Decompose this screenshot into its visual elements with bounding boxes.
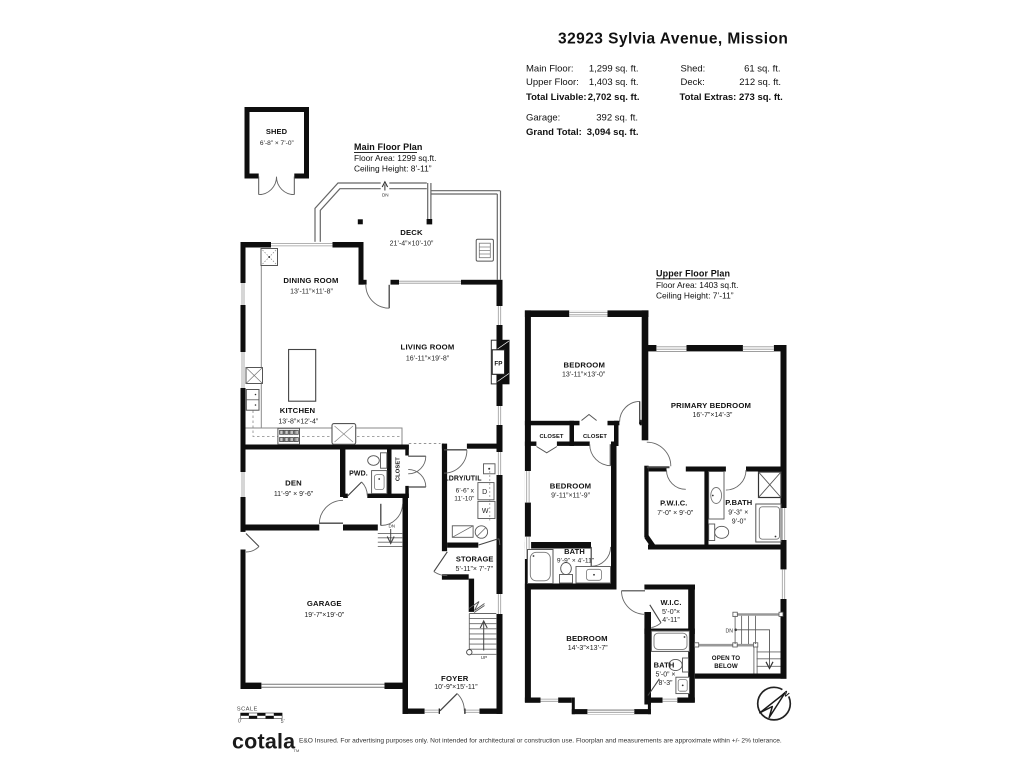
svg-text:Floor Area: 1299 sq.ft.: Floor Area: 1299 sq.ft. (354, 153, 436, 163)
svg-text:5’-0” ×: 5’-0” × (655, 672, 675, 679)
svg-text:Deck:: Deck: (681, 77, 705, 88)
svg-text:cotala: cotala (232, 730, 296, 754)
svg-text:5’: 5’ (281, 719, 285, 725)
svg-text:Floor Area: 1403 sq.ft.: Floor Area: 1403 sq.ft. (656, 280, 738, 290)
svg-text:Shed:: Shed: (681, 64, 706, 75)
svg-text:13’-8”×12’-4”: 13’-8”×12’-4” (278, 419, 319, 426)
svg-text:14’-3”×13’-7”: 14’-3”×13’-7” (568, 645, 609, 652)
svg-text:61 sq. ft.: 61 sq. ft. (744, 64, 780, 75)
svg-text:11’-9” × 9’-6”: 11’-9” × 9’-6” (274, 491, 314, 498)
svg-text:LDRY/UTIL: LDRY/UTIL (444, 476, 482, 483)
svg-text:DEN: DEN (285, 479, 302, 488)
svg-text:DN: DN (388, 524, 395, 529)
svg-text:UP: UP (481, 655, 487, 660)
svg-text:Total Extras: 273 sq. ft.: Total Extras: 273 sq. ft. (680, 92, 783, 103)
svg-text:OPEN TO: OPEN TO (712, 655, 741, 662)
svg-text:Main Floor Plan: Main Floor Plan (354, 142, 423, 152)
svg-text:P.BATH: P.BATH (725, 498, 752, 507)
svg-text:392 sq. ft.: 392 sq. ft. (596, 113, 638, 124)
svg-text:BELOW: BELOW (714, 663, 738, 670)
svg-text:6’-8” × 7’-0”: 6’-8” × 7’-0” (260, 140, 294, 147)
svg-text:W: W (482, 508, 489, 515)
svg-text:6’-6” x: 6’-6” x (456, 488, 475, 495)
svg-text:D: D (482, 489, 487, 496)
svg-text:W.I.C.: W.I.C. (660, 598, 681, 607)
svg-text:PRIMARY BEDROOM: PRIMARY BEDROOM (671, 401, 751, 410)
svg-text:3,094 sq. ft.: 3,094 sq. ft. (587, 127, 639, 138)
svg-text:P.W.I.C.: P.W.I.C. (660, 499, 687, 508)
svg-text:8’-3”: 8’-3” (658, 680, 673, 687)
svg-text:Upper Floor Plan: Upper Floor Plan (656, 269, 730, 279)
svg-text:16’-7”×14’-3”: 16’-7”×14’-3” (692, 412, 733, 419)
svg-text:4’-11”: 4’-11” (662, 617, 680, 624)
svg-text:BATH: BATH (564, 547, 585, 556)
svg-text:PWD.: PWD. (349, 471, 368, 478)
svg-text:Grand Total:: Grand Total: (526, 127, 582, 138)
svg-text:BEDROOM: BEDROOM (564, 361, 606, 370)
svg-text:CLOSET: CLOSET (583, 434, 607, 440)
svg-text:Garage:: Garage: (526, 113, 560, 124)
svg-text:0’: 0’ (238, 719, 242, 725)
svg-text:DN: DN (382, 193, 389, 198)
svg-text:Total Livable:: Total Livable: (526, 92, 587, 103)
svg-text:BATH: BATH (654, 661, 675, 670)
svg-text:LIVING ROOM: LIVING ROOM (401, 343, 455, 352)
svg-text:2,702 sq. ft.: 2,702 sq. ft. (588, 92, 640, 103)
svg-text:SHED: SHED (266, 127, 288, 136)
svg-text:5’-0”×: 5’-0”× (662, 609, 680, 616)
svg-text:9’-11”×11’-9”: 9’-11”×11’-9” (551, 493, 591, 500)
svg-text:Ceiling Height: 7’-11”: Ceiling Height: 7’-11” (656, 291, 734, 301)
svg-text:16’-11”×19’-8”: 16’-11”×19’-8” (406, 356, 450, 363)
svg-text:9’-9” × 4’-11”: 9’-9” × 4’-11” (557, 558, 594, 565)
svg-text:CLOSET: CLOSET (539, 434, 563, 440)
svg-text:Ceiling Height: 8’-11”: Ceiling Height: 8’-11” (354, 164, 432, 174)
svg-text:9’-3” ×: 9’-3” × (728, 510, 748, 517)
svg-text:GARAGE: GARAGE (307, 599, 342, 608)
svg-text:9’-0”: 9’-0” (732, 519, 747, 526)
svg-text:BEDROOM: BEDROOM (550, 482, 592, 491)
svg-text:21’-4”×10’-10”: 21’-4”×10’-10” (390, 241, 434, 248)
svg-text:CLOSET: CLOSET (396, 457, 402, 481)
svg-text:1,403 sq. ft.: 1,403 sq. ft. (589, 77, 639, 88)
svg-text:FP: FP (494, 361, 502, 368)
svg-text:Upper Floor:: Upper Floor: (526, 77, 579, 88)
svg-text:1,299 sq. ft.: 1,299 sq. ft. (589, 64, 639, 75)
svg-text:11’-10”: 11’-10” (454, 496, 474, 503)
svg-text:32923 Sylvia Avenue, Mission: 32923 Sylvia Avenue, Mission (558, 31, 788, 48)
svg-text:KITCHEN: KITCHEN (280, 406, 316, 415)
svg-text:DINING ROOM: DINING ROOM (283, 276, 338, 285)
svg-text:Main Floor:: Main Floor: (526, 64, 574, 75)
svg-text:E&O Insured. For advertising p: E&O Insured. For advertising purposes on… (299, 738, 782, 745)
svg-text:19’-7”×19’-0”: 19’-7”×19’-0” (304, 612, 345, 619)
svg-text:13’-11”×13’-0”: 13’-11”×13’-0” (562, 371, 606, 378)
svg-text:5’-11”× 7’-7”: 5’-11”× 7’-7” (455, 566, 493, 573)
svg-text:DECK: DECK (400, 228, 423, 237)
svg-text:DN: DN (726, 629, 734, 635)
svg-text:FOYER: FOYER (441, 674, 469, 683)
svg-text:TM: TM (294, 748, 300, 753)
svg-text:BEDROOM: BEDROOM (566, 634, 608, 643)
svg-text:13’-11”×11’-8”: 13’-11”×11’-8” (290, 289, 333, 296)
svg-text:212 sq. ft.: 212 sq. ft. (739, 77, 781, 88)
svg-text:SCALE: SCALE (237, 707, 258, 713)
svg-text:STORAGE: STORAGE (456, 555, 494, 564)
svg-text:10’-9”×15’-11”: 10’-9”×15’-11” (434, 684, 478, 691)
svg-text:7’-0” × 9’-0”: 7’-0” × 9’-0” (657, 510, 694, 517)
